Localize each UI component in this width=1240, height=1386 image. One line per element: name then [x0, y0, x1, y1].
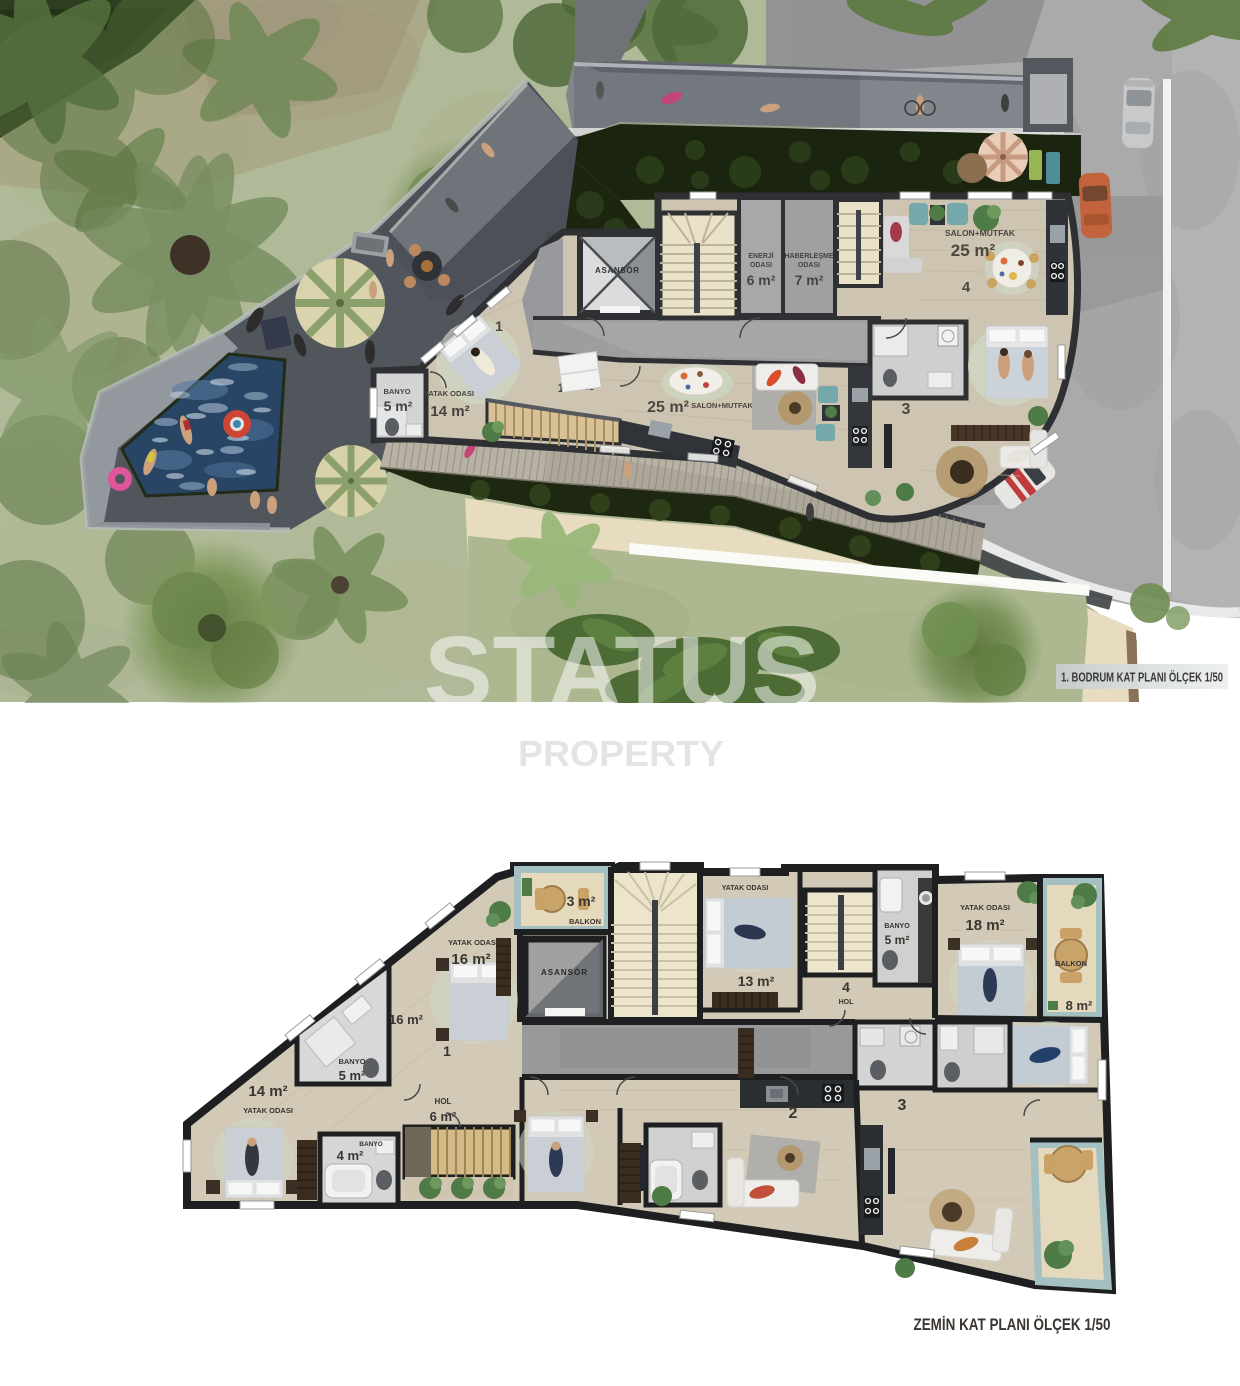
svg-text:3: 3 [902, 401, 911, 418]
svg-text:3 m²: 3 m² [567, 893, 596, 909]
svg-text:7 m²: 7 m² [795, 272, 824, 288]
svg-text:16 m²: 16 m² [451, 951, 490, 968]
svg-text:4: 4 [962, 279, 971, 296]
svg-text:6 m²: 6 m² [747, 272, 776, 288]
svg-text:HOL: HOL [839, 999, 855, 1006]
svg-text:YATAK ODASI: YATAK ODASI [448, 938, 498, 947]
svg-text:13 m²: 13 m² [738, 973, 775, 989]
svg-text:BANYO: BANYO [359, 1141, 382, 1148]
svg-text:ZEMİN KAT PLANI ÖLÇEK 1/50: ZEMİN KAT PLANI ÖLÇEK 1/50 [914, 1315, 1111, 1334]
svg-text:BANYO: BANYO [338, 1057, 365, 1066]
svg-text:5 m²: 5 m² [885, 933, 910, 947]
svg-text:ENERJİ: ENERJİ [748, 252, 773, 260]
svg-text:25 m²: 25 m² [951, 241, 996, 260]
svg-text:ASANSÖR: ASANSÖR [595, 266, 639, 275]
svg-text:14 m²: 14 m² [248, 1083, 287, 1100]
svg-text:5 m²: 5 m² [384, 398, 413, 414]
svg-text:2: 2 [789, 1105, 798, 1122]
svg-text:16 m²: 16 m² [389, 1012, 424, 1027]
svg-text:5 m²: 5 m² [339, 1068, 366, 1083]
svg-text:18 m²: 18 m² [965, 917, 1004, 934]
svg-text:25 m²: 25 m² [647, 399, 689, 416]
svg-text:PROPERTY: PROPERTY [518, 733, 724, 774]
svg-text:1. BODRUM KAT PLANI ÖLÇEK 1/50: 1. BODRUM KAT PLANI ÖLÇEK 1/50 [1061, 670, 1223, 685]
svg-text:ODASI: ODASI [750, 262, 772, 269]
svg-text:SALON+MUTFAK: SALON+MUTFAK [691, 401, 753, 410]
svg-text:BALKON: BALKON [1055, 959, 1087, 968]
svg-text:STATUS: STATUS [424, 616, 820, 728]
svg-text:6 m²: 6 m² [430, 1109, 457, 1124]
svg-text:YATAK ODASI: YATAK ODASI [424, 389, 474, 398]
svg-text:HABERLEŞME: HABERLEŞME [784, 253, 833, 260]
svg-text:SALON+MUTFAK: SALON+MUTFAK [945, 228, 1016, 238]
svg-text:BANYO: BANYO [884, 923, 910, 930]
svg-text:BANYO: BANYO [383, 387, 410, 396]
svg-text:HOL: HOL [435, 1097, 452, 1106]
svg-text:14 m²: 14 m² [430, 403, 469, 420]
svg-text:4 m²: 4 m² [337, 1148, 364, 1163]
svg-text:ODASI: ODASI [798, 262, 820, 269]
svg-text:YATAK ODASI: YATAK ODASI [960, 903, 1010, 912]
svg-text:1: 1 [443, 1043, 451, 1059]
svg-text:8 m²: 8 m² [1066, 998, 1093, 1013]
svg-text:BALKON: BALKON [569, 917, 601, 926]
svg-text:YATAK ODASI: YATAK ODASI [243, 1106, 293, 1115]
svg-text:YATAK ODASI: YATAK ODASI [722, 885, 769, 892]
svg-text:4: 4 [842, 979, 850, 995]
svg-text:3: 3 [898, 1097, 907, 1114]
svg-text:1: 1 [495, 318, 503, 334]
svg-text:ASANSÖR: ASANSÖR [541, 968, 587, 977]
